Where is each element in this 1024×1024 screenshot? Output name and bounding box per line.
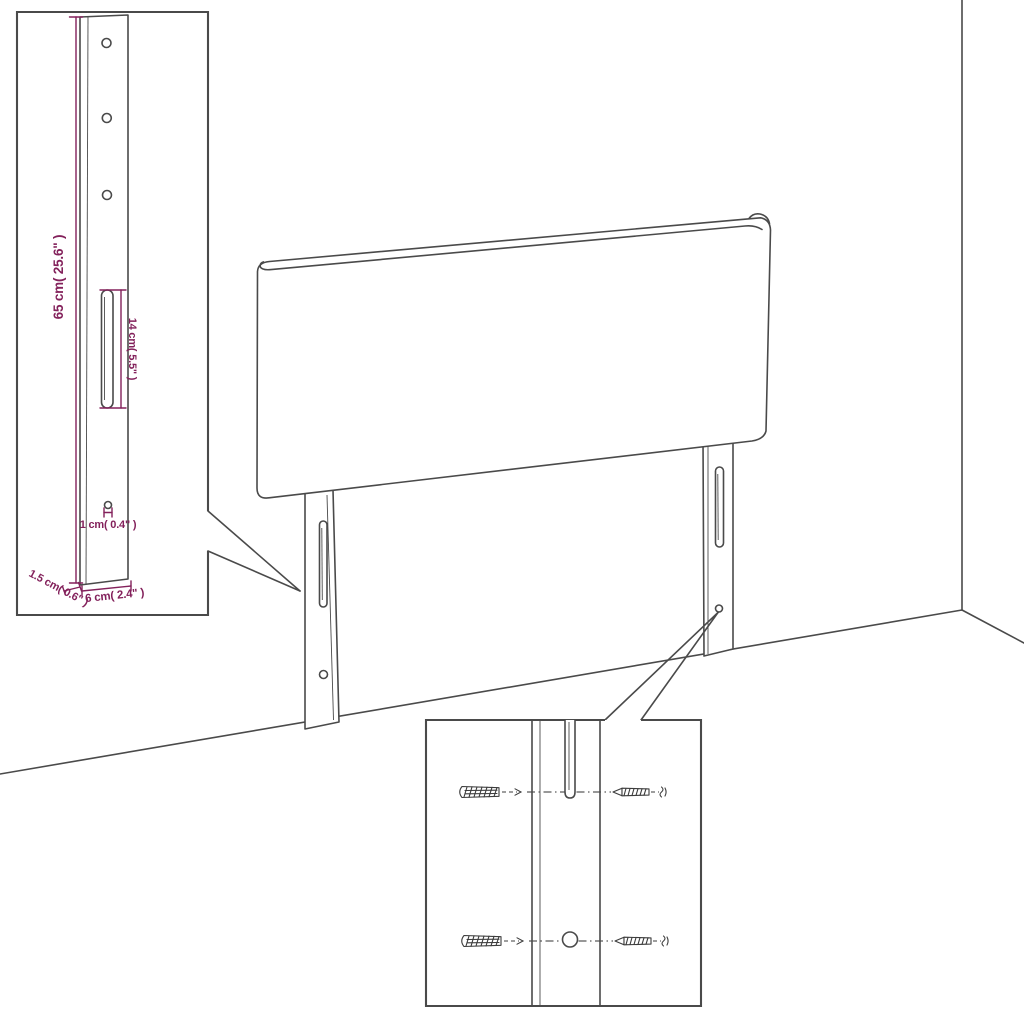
bracket-slot	[102, 290, 114, 408]
dimension-slot-label: 14 cm( 5.5" )	[126, 318, 138, 381]
mounting-hardware-inset	[426, 720, 701, 1006]
floor-wall-line-right	[962, 610, 1024, 643]
headboard-outline	[257, 218, 771, 498]
bracket-hole	[103, 191, 112, 200]
dimension-height-label: 65 cm( 25.6" )	[51, 235, 66, 320]
leg-strip-hole	[563, 932, 578, 947]
bracket-hole	[102, 114, 111, 123]
bracket-small-hole	[105, 502, 112, 509]
right-leg-hole	[716, 605, 723, 612]
callout-wedge-right-leg	[605, 613, 718, 721]
headboard-panel	[257, 214, 771, 498]
wedge-line	[605, 613, 718, 721]
right-leg-slot	[716, 467, 724, 547]
diagram-canvas: 65 cm( 25.6" ) 14 cm( 5.5" ) 1 cm( 0.4" …	[0, 0, 1024, 1024]
dimension-hole-label: 1 cm( 0.4" )	[80, 519, 137, 531]
inset-background	[426, 720, 701, 1006]
wedge-line	[208, 511, 300, 591]
wedge-line	[208, 551, 300, 591]
bracket-hole	[102, 39, 111, 48]
left-leg-slot-inner	[322, 528, 323, 600]
left-leg-hole	[320, 671, 328, 679]
leg-strip-slot	[565, 720, 575, 798]
assembly-diagram: 65 cm( 25.6" ) 14 cm( 5.5" ) 1 cm( 0.4" …	[0, 0, 1024, 1024]
wedge-line	[641, 613, 718, 721]
left-leg-slot	[320, 521, 328, 607]
